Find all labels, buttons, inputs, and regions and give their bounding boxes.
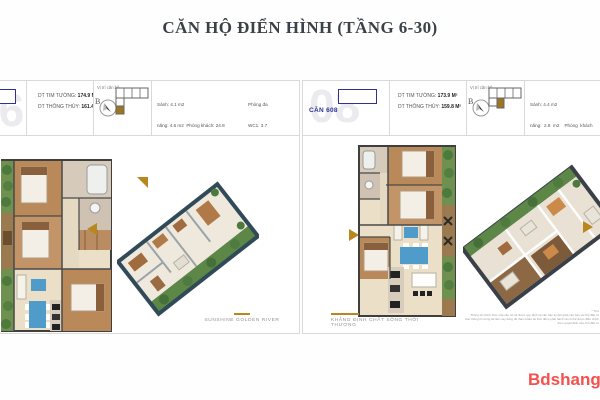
gold-divider — [331, 313, 359, 315]
corridor — [62, 198, 79, 269]
project-caption: SUNSHINE GOLDEN RIVER — [177, 313, 307, 323]
page-title: CĂN HỘ ĐIỂN HÌNH (TẦNG 6-30) — [0, 18, 600, 38]
room-line: Phòng đa — [248, 101, 281, 108]
unit-location-cell: Vị trí căn hộ B — [466, 81, 525, 135]
sofa — [420, 225, 428, 240]
room-line: năng: 4.6 m2 Phòng khách: 24.8 — [157, 122, 225, 129]
metric-value: 174.9 M² — [78, 93, 94, 99]
room-list-column-2: Phòng đa WC1: 3.7 WC2: 7.4 m2 Logia1: 31… — [248, 87, 281, 135]
metric-label: DT THÔNG THỦY: — [398, 104, 441, 110]
metric-thong-thuy: DT THÔNG THỦY: 161.4 M² — [38, 102, 93, 113]
compass-icon: B — [95, 95, 117, 119]
metric-tim-tuong: DT TIM TƯỜNG: 174.9 M² — [38, 91, 93, 102]
disclaimer-note: * Thư Thông số chính thức của căn hộ sẽ … — [423, 309, 599, 325]
room-line: Sảnh: 4.4 m2 — [530, 101, 593, 108]
table — [412, 273, 436, 287]
unit-id-cell: 08 CĂN 608 — [303, 81, 390, 135]
dining-table — [400, 247, 428, 264]
caption-text: THƯỢNG — [331, 323, 356, 328]
room-areas-cell: Sảnh: 4.4 m2 năng: 2.8 m2 Phòng khách h … — [524, 81, 600, 135]
building-keyplan-icon — [488, 87, 522, 115]
metric-label: DT TIM TƯỜNG: — [398, 93, 438, 99]
floor-plan-2d — [1, 156, 113, 332]
panel-header: 08 CĂN 608 DT TIM TƯỜNG: 173.9 M² DT THÔ… — [303, 81, 600, 136]
metric-value: 173.9 M² — [438, 93, 458, 99]
unit-label: CĂN 608 — [309, 107, 338, 114]
panel-header: 06 DT TIM TƯỜNG: 174.9 M² DT THÔNG THỦY:… — [0, 81, 299, 136]
unit-pointer-arrow-icon — [87, 223, 97, 235]
metric-thong-thuy: DT THÔNG THỦY: 159.8 M² — [398, 102, 466, 113]
bathtub — [87, 165, 107, 194]
unit-location-cell: Vị trí căn hộ B — [93, 81, 152, 135]
highlighted-unit — [497, 98, 504, 108]
floor-plan-2d — [358, 145, 456, 317]
compass-icon: B — [468, 95, 490, 119]
building-keyplan-icon — [115, 87, 149, 115]
sofa — [394, 225, 402, 240]
unit-id-cell: 06 — [0, 81, 27, 135]
brochure-page: CĂN HỘ ĐIỂN HÌNH (TẦNG 6-30) 06 DT TIM T… — [0, 0, 600, 400]
coffee-table — [31, 279, 46, 291]
room-line: WC1: 3.7 — [248, 122, 281, 129]
caption-text: SUNSHINE GOLDEN RIVER — [205, 318, 280, 323]
unit-highlight-box — [0, 89, 16, 104]
floor-plan-3d — [117, 161, 259, 331]
gold-divider — [234, 313, 250, 315]
brand-watermark: Bdshanghi — [528, 370, 600, 390]
room-list-column-1: Sảnh: 4.4 m2 năng: 2.8 m2 Phòng khách h … — [530, 87, 593, 135]
dining-table — [29, 301, 46, 328]
room-areas-cell: Sảnh: 4.1 m2 năng: 4.6 m2 Phòng khách: 2… — [151, 81, 299, 135]
metric-value: 159.8 M² — [441, 104, 461, 110]
highlighted-unit — [116, 106, 124, 114]
room-line: năng: 2.8 m2 Phòng khách — [530, 122, 593, 129]
plan-pointer-arrow-icon — [583, 221, 593, 233]
metric-label: DT THÔNG THỦY: — [38, 104, 81, 110]
unit-highlight-box — [338, 89, 377, 104]
metric-tim-tuong: DT TIM TƯỜNG: 173.9 M² — [398, 91, 466, 102]
room-list-column-1: Sảnh: 4.1 m2 năng: 4.6 m2 Phòng khách: 2… — [157, 87, 225, 135]
area-metrics-cell: DT TIM TƯỜNG: 174.9 M² DT THÔNG THỦY: 16… — [26, 81, 94, 135]
disclaimer-line: theo quyết định của chủ đầu tư — [423, 321, 599, 325]
floor-plan-3d — [463, 139, 600, 331]
coffee-table — [404, 227, 418, 238]
bathtub — [363, 151, 375, 169]
sofa — [17, 275, 26, 299]
apartment-panel-left: 06 DT TIM TƯỜNG: 174.9 M² DT THÔNG THỦY:… — [0, 80, 300, 334]
area-metrics-cell: DT TIM TƯỜNG: 173.9 M² DT THÔNG THỦY: 15… — [389, 81, 467, 135]
room-line: Sảnh: 4.1 m2 — [157, 101, 225, 108]
apartment-panel-right: 08 CĂN 608 DT TIM TƯỜNG: 173.9 M² DT THÔ… — [302, 80, 600, 334]
corridor — [380, 173, 388, 225]
metric-label: DT TIM TƯỜNG: — [38, 93, 78, 99]
